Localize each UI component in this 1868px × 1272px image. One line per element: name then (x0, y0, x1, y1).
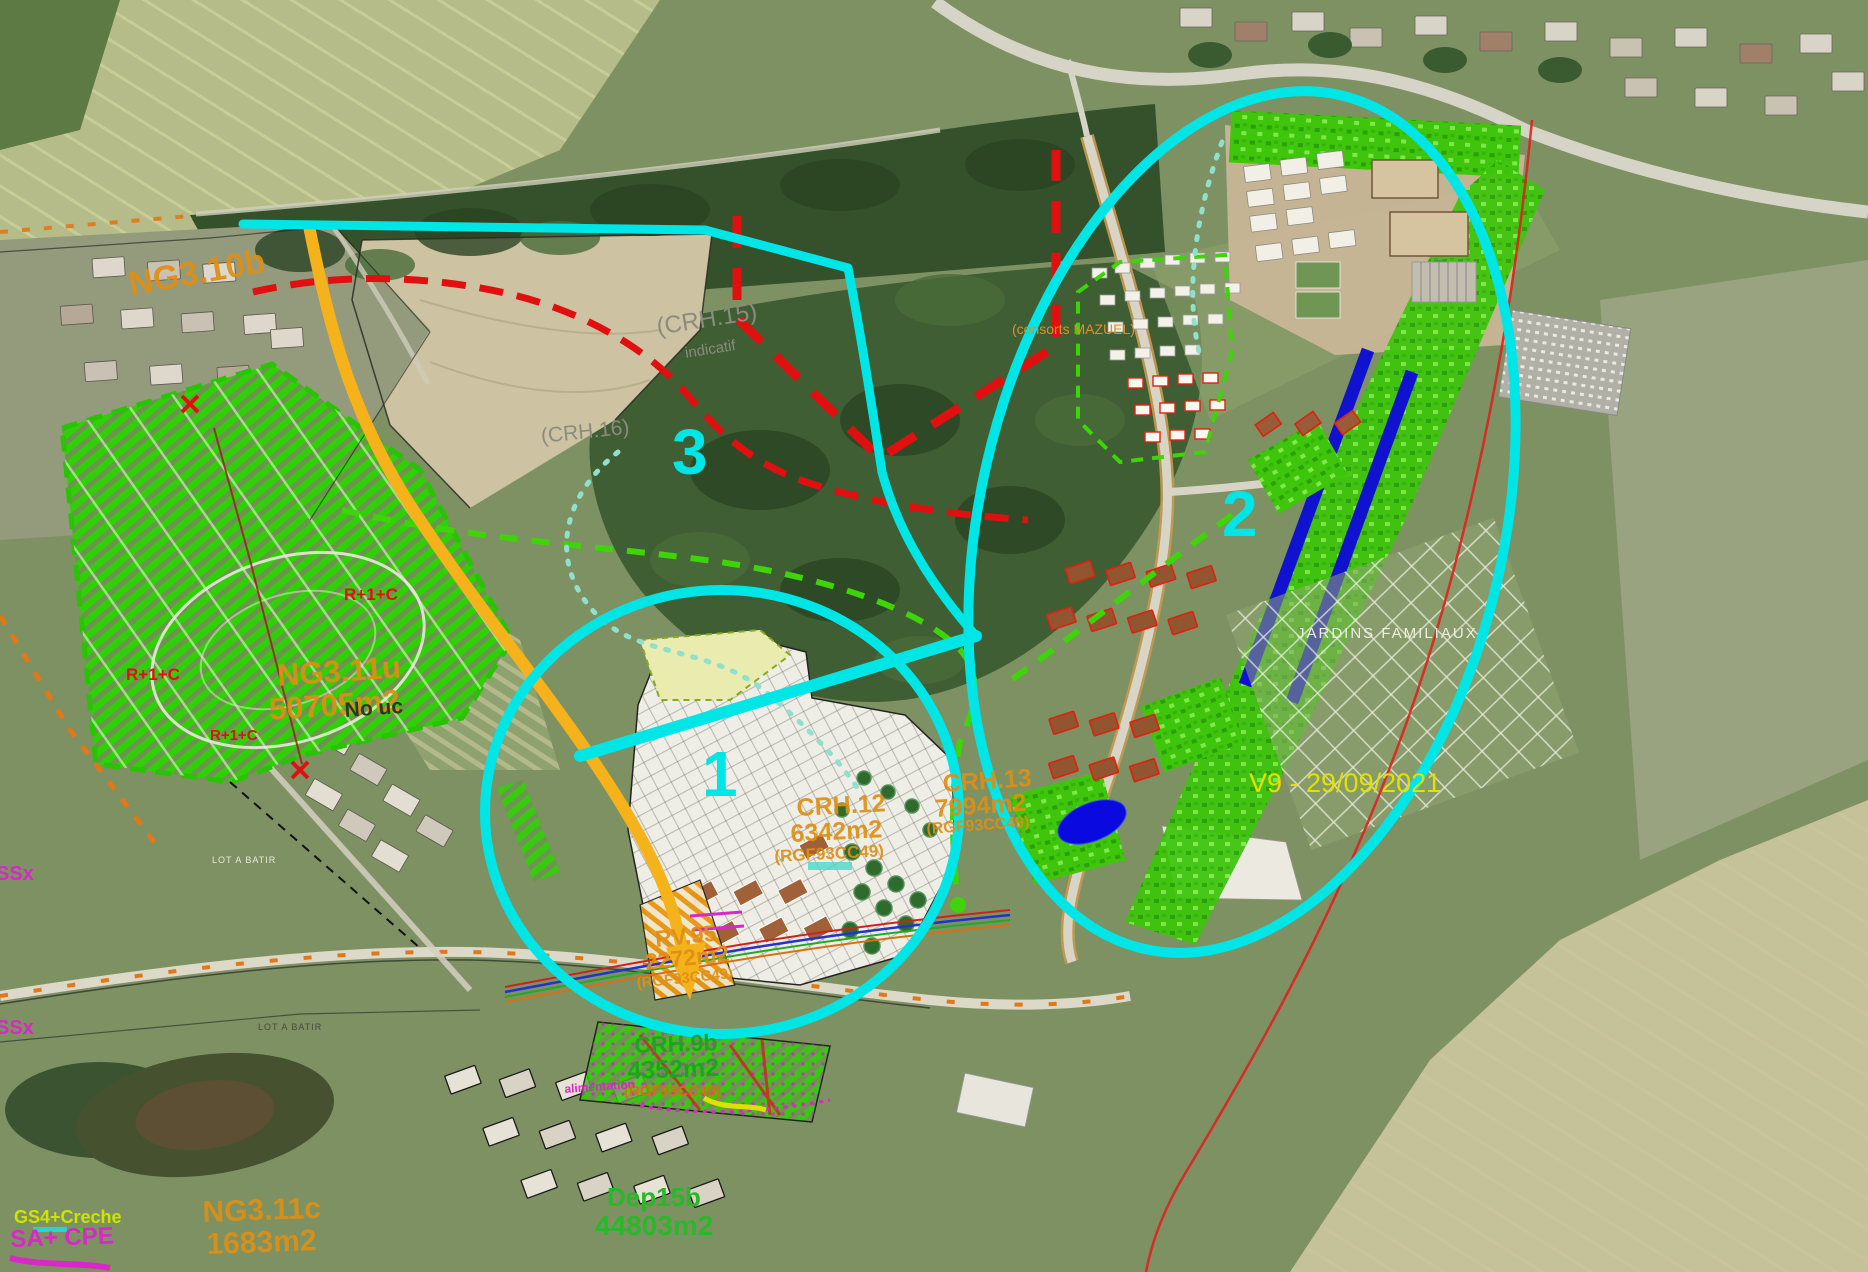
label-consorts-mazuel: (consorts MAZUEL) (1012, 322, 1135, 336)
label-dep15b-area: 44803m2 (595, 1212, 713, 1240)
label-no-uc: No uc (344, 696, 404, 721)
label-jardins-familiaux: JARDINS FAMILIAUX (1297, 626, 1478, 641)
label-lot-a-batir-2: LOT A BATIR (258, 1023, 322, 1032)
label-ssx-1: SSx (0, 864, 34, 884)
zone-1-number: 1 (702, 742, 738, 806)
label-r1c-2: R+1+C (126, 666, 180, 683)
aerial-planning-map: 3 1 2 (CRH.15) indicatif (CRH.16) (conso… (0, 0, 1868, 1272)
zone-3-number: 3 (672, 420, 708, 484)
label-version-date: V9 - 29/09/2021 (1249, 770, 1441, 797)
label-cpe: SA+ CPE (10, 1224, 114, 1252)
label-ssx-2: SSx (0, 1018, 34, 1038)
label-ng311c-id: NG3.11c (202, 1194, 321, 1228)
label-r1c-1: R+1+C (344, 586, 398, 603)
label-r1c-3: R+1+C (210, 728, 258, 743)
label-crh9b-ref: (RGF93CC49) (624, 1084, 721, 1099)
label-ng311c-area: 1683m2 (206, 1226, 317, 1260)
aerial-map-svg (0, 0, 1868, 1272)
label-crh9b-id: CRH.9b (634, 1031, 718, 1057)
label-dep15b-id: Dep15b (607, 1184, 701, 1210)
label-lot-a-batir-1: LOT A BATIR (212, 856, 276, 865)
zone-2-number: 2 (1222, 482, 1258, 546)
label-crh9b-area: 4352m2 (627, 1056, 720, 1084)
